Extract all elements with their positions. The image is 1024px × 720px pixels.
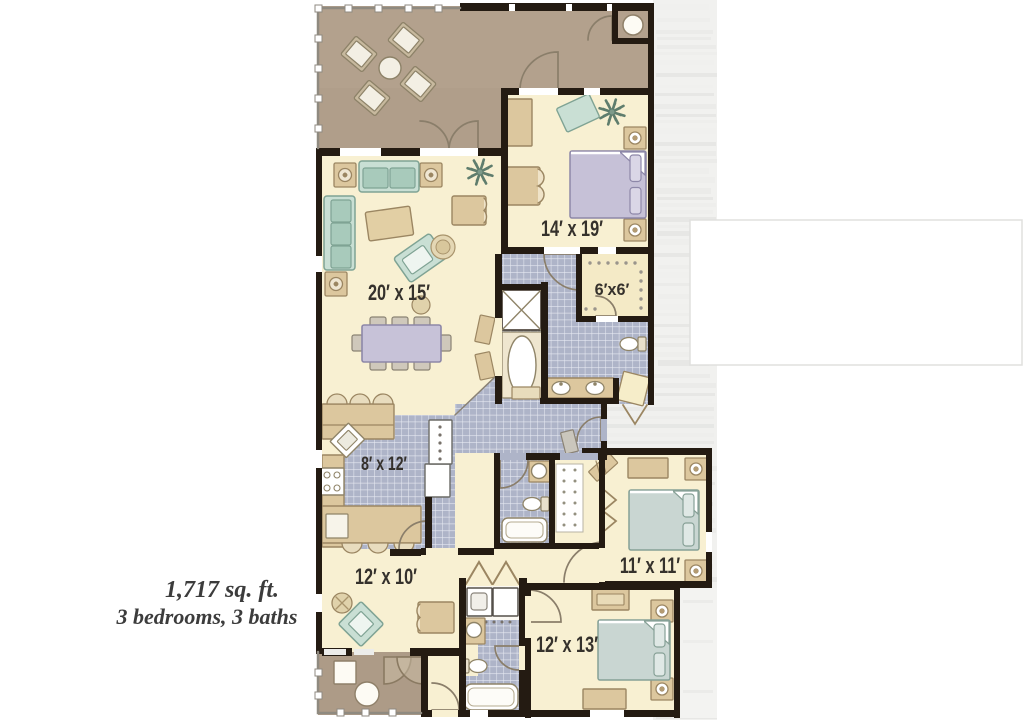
svg-text:8′ x 12′: 8′ x 12′ [361, 453, 407, 475]
svg-text:6′x6′: 6′x6′ [595, 280, 630, 299]
svg-text:14′ x 19′: 14′ x 19′ [541, 217, 603, 242]
svg-text:12′ x 10′: 12′ x 10′ [355, 565, 417, 590]
svg-text:12′ x 13′: 12′ x 13′ [536, 633, 598, 658]
svg-text:3 bedrooms, 3 baths: 3 bedrooms, 3 baths [116, 604, 298, 629]
svg-text:11′ x 11′: 11′ x 11′ [620, 554, 681, 579]
svg-text:20′ x 15′: 20′ x 15′ [368, 281, 430, 306]
svg-text:1,717 sq. ft.: 1,717 sq. ft. [165, 577, 279, 603]
